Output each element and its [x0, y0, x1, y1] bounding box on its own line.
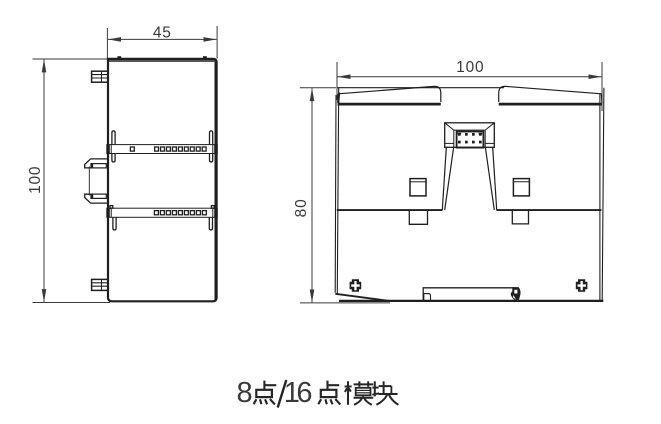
svg-text:45: 45: [153, 24, 172, 41]
svg-text:100: 100: [27, 166, 44, 194]
svg-text:80: 80: [293, 198, 310, 217]
svg-text:100: 100: [456, 59, 484, 76]
svg-text:6: 6: [296, 377, 312, 409]
svg-text:8: 8: [237, 377, 253, 409]
